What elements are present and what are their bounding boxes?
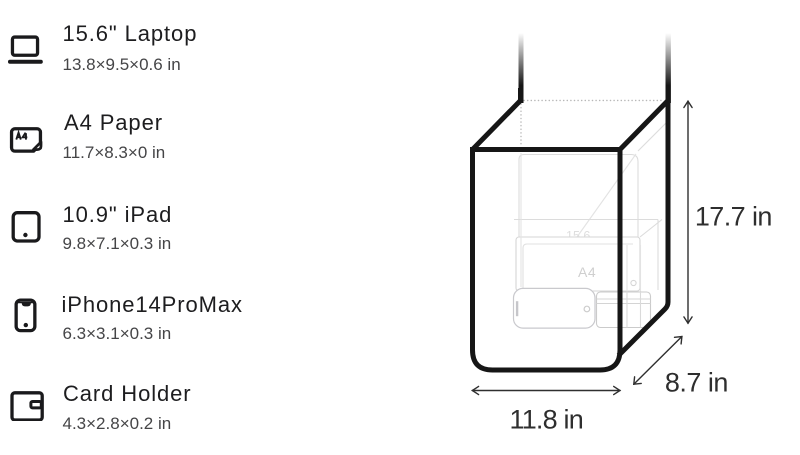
svg-text:11.8 in: 11.8 in xyxy=(510,405,583,435)
svg-text:8.7 in: 8.7 in xyxy=(665,368,728,398)
svg-text:A4: A4 xyxy=(578,264,596,280)
svg-text:17.7 in: 17.7 in xyxy=(695,202,772,232)
